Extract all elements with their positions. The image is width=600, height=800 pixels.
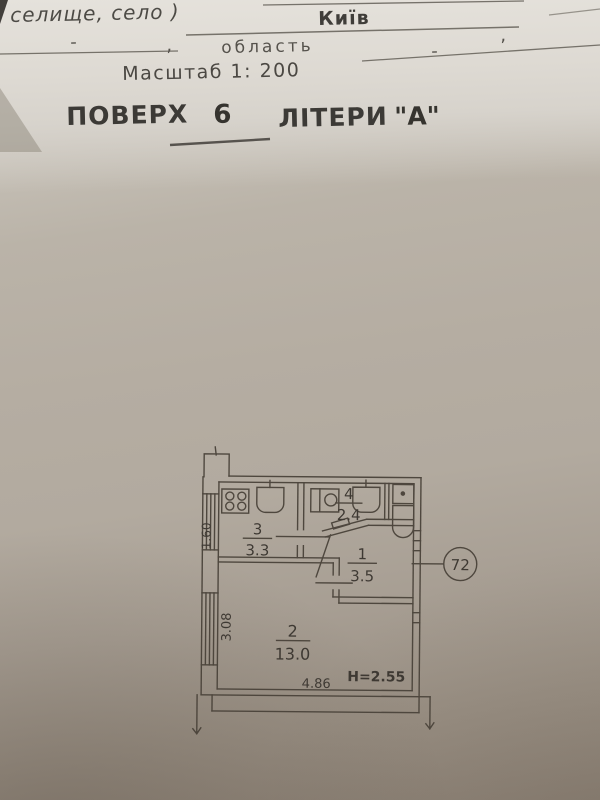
photo-vignette [0,0,600,800]
scanned-floorplan-page: селище, село ) Київ - , область - , Масш… [0,0,600,800]
